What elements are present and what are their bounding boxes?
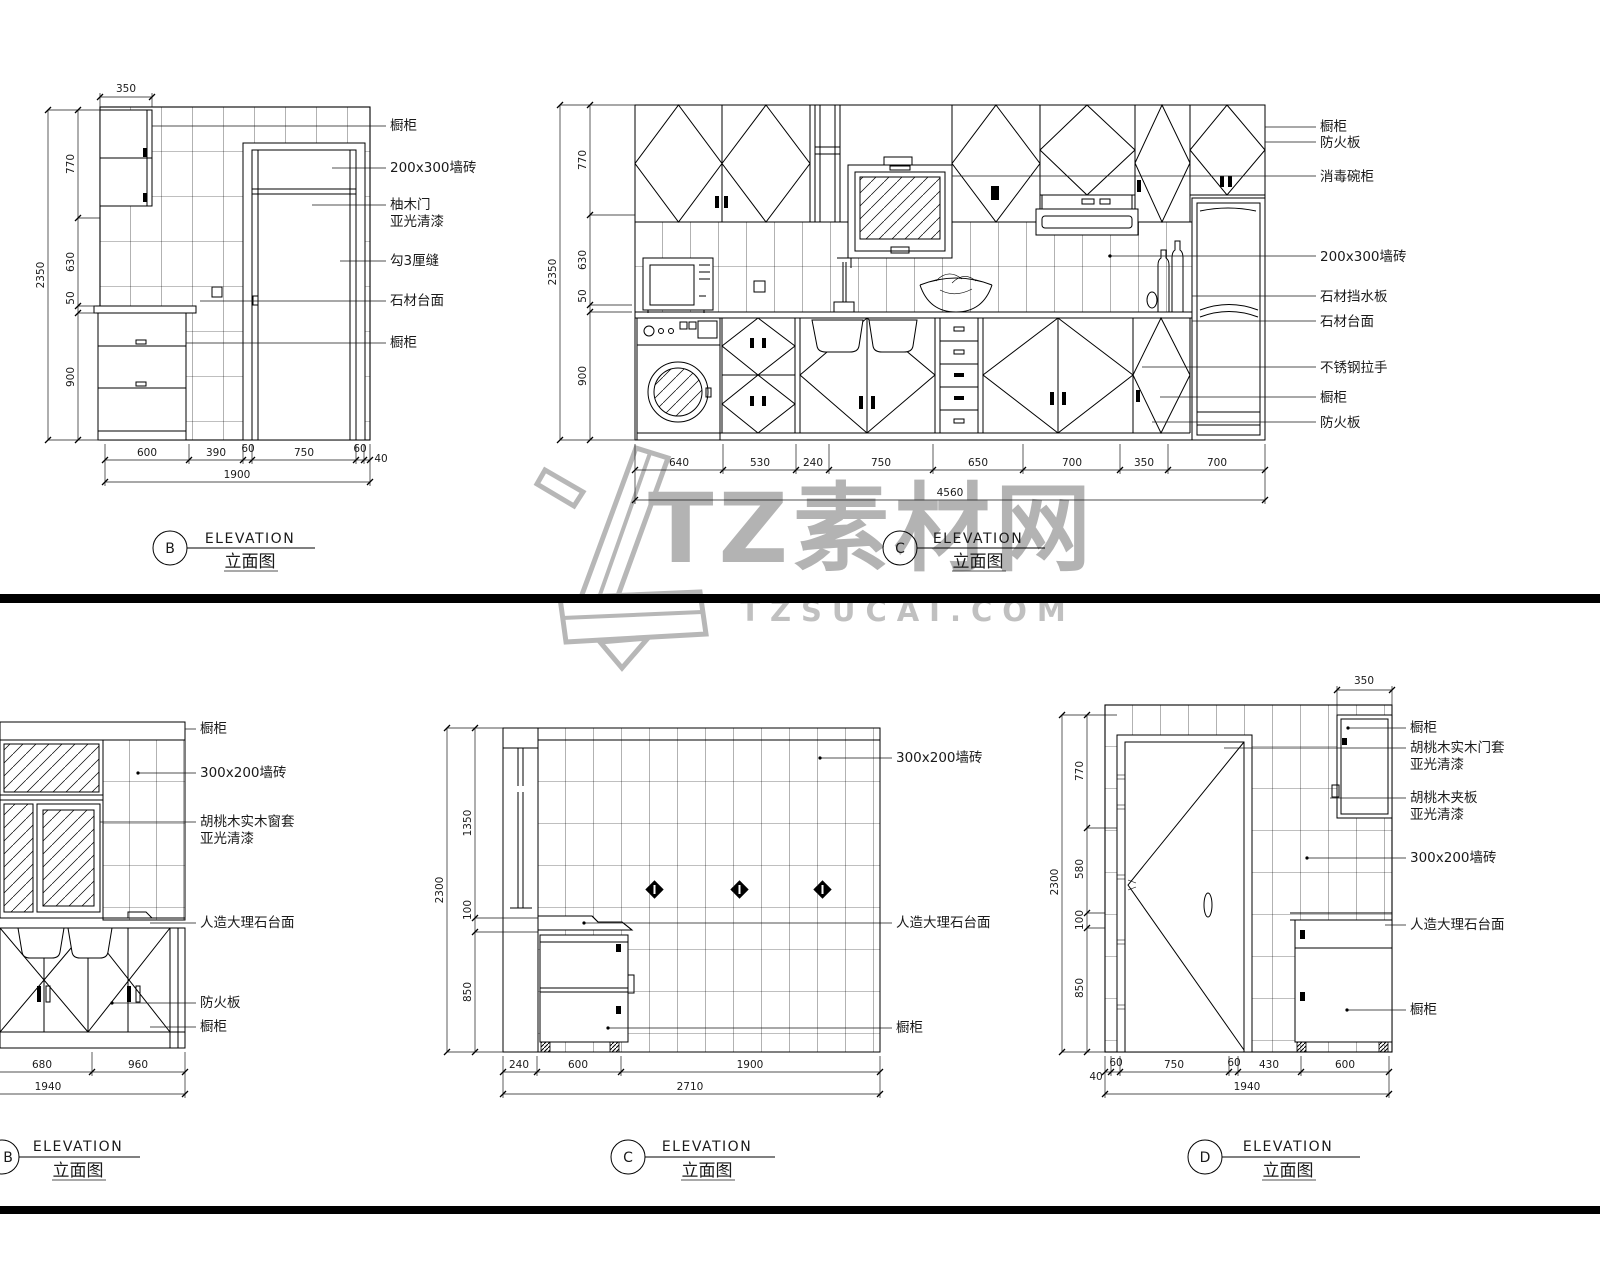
callout-label: 石材台面 xyxy=(1320,314,1374,330)
dim-label: 770 xyxy=(1074,761,1086,781)
callout-label: 石材台面 xyxy=(390,293,444,309)
title-zh: 立面图 xyxy=(225,552,276,572)
callout-label: 亚光清漆 xyxy=(390,214,444,230)
sink-bowl xyxy=(812,320,863,352)
base-cabinet xyxy=(94,306,196,440)
dim-label: 350 xyxy=(116,83,136,95)
callout-label: 人造大理石台面 xyxy=(896,915,991,931)
upper-cabinet-strip xyxy=(0,722,185,740)
wall-socket xyxy=(212,287,222,297)
dim-label: 600 xyxy=(137,447,157,459)
callout-label: 防火板 xyxy=(200,995,241,1011)
callout-label: 橱柜 xyxy=(1320,119,1347,135)
dim-label: 1900 xyxy=(737,1059,764,1071)
elevation-bottom-b: 680 960 1940 橱柜 300x200墙砖 胡桃木实木窗套 亚光清漆 人… xyxy=(0,721,295,1181)
dim-label: 60 xyxy=(1109,1057,1122,1069)
watermark: TZ素材网 TZSUCAI.COM xyxy=(537,448,1096,668)
callout-label: 橱柜 xyxy=(1320,390,1347,406)
callout-label: 橱柜 xyxy=(200,1019,227,1035)
title-zh: 立面图 xyxy=(953,552,1004,572)
drawing xyxy=(0,722,185,1048)
dim-label: 100 xyxy=(1074,910,1086,930)
dim-label: 900 xyxy=(65,367,77,387)
dim-label: 700 xyxy=(1207,457,1227,469)
dim-label: 2350 xyxy=(35,262,47,289)
cad-sheet: TZ素材网 TZSUCAI.COM xyxy=(0,0,1600,1280)
dim-label: 630 xyxy=(577,250,589,270)
dim-label: 850 xyxy=(1074,978,1086,998)
drawing xyxy=(503,728,880,1052)
callout-label: 300x200墙砖 xyxy=(200,765,287,781)
dim-label: 50 xyxy=(577,289,589,302)
callout-label: 亚光清漆 xyxy=(1410,807,1464,823)
callout-label: 橱柜 xyxy=(1410,1002,1437,1018)
title-block: B ELEVATION 立面图 xyxy=(0,1139,140,1181)
base-cabinets xyxy=(0,928,185,1048)
dim-label: 600 xyxy=(568,1059,588,1071)
dim-label: 240 xyxy=(803,457,823,469)
callout-label: 橱柜 xyxy=(896,1020,923,1036)
title-zh: 立面图 xyxy=(682,1161,733,1181)
dim-label: 60 xyxy=(353,443,366,455)
stone-countertop xyxy=(635,312,1192,318)
dim-label: 2300 xyxy=(1049,869,1061,896)
title-letter: C xyxy=(895,541,905,557)
dim-label: 600 xyxy=(1335,1059,1355,1071)
dim-label: 100 xyxy=(462,900,474,920)
dim-label: 1940 xyxy=(1234,1081,1261,1093)
wall-socket xyxy=(754,281,765,292)
divider-top xyxy=(0,594,1600,603)
sink-bowl xyxy=(18,928,64,958)
tiled-wall xyxy=(103,740,185,920)
callout-label: 胡桃木实木门套 xyxy=(1410,740,1505,756)
dim-label: 680 xyxy=(32,1059,52,1071)
callout-label: 防火板 xyxy=(1320,135,1361,151)
watermark-brand: TZ素材网 xyxy=(648,473,1096,585)
stone-countertop xyxy=(94,306,196,313)
dim-label: 700 xyxy=(1062,457,1082,469)
dim-label: 650 xyxy=(968,457,988,469)
cabinet-foot xyxy=(1379,1042,1388,1052)
dim-label: 60 xyxy=(1227,1057,1240,1069)
dim-label: 60 xyxy=(241,443,254,455)
callout-label: 勾3厘缝 xyxy=(390,253,439,269)
dim-label: 630 xyxy=(65,252,77,272)
title-letter: D xyxy=(1200,1150,1211,1166)
dim-label: 4560 xyxy=(937,487,964,499)
title-zh: 立面图 xyxy=(1263,1161,1314,1181)
title-block: B ELEVATION 立面图 xyxy=(153,531,315,572)
title-block: C ELEVATION 立面图 xyxy=(611,1139,775,1181)
drawer-stack xyxy=(940,318,978,433)
callout-label: 石材挡水板 xyxy=(1320,289,1388,305)
tall-cabinet-fridge xyxy=(1192,198,1265,440)
door xyxy=(1117,735,1252,1052)
elevation-bottom-c: 1350 100 850 2300 240 600 1900 2710 300x… xyxy=(434,725,991,1181)
dim-label: 430 xyxy=(1259,1059,1279,1071)
upper-cabinet xyxy=(1332,715,1392,818)
dim-label: 40 xyxy=(1089,1071,1102,1083)
callout-label: 防火板 xyxy=(1320,415,1361,431)
callout-label: 200x300墙砖 xyxy=(1320,249,1407,265)
title-block: D ELEVATION 立面图 xyxy=(1188,1139,1360,1181)
divider-bottom xyxy=(0,1206,1600,1214)
dim-label: 350 xyxy=(1134,457,1154,469)
title-en: ELEVATION xyxy=(33,1139,123,1155)
sterilizer-cabinet xyxy=(848,157,952,258)
dim-label: 50 xyxy=(65,291,77,304)
dim-label: 750 xyxy=(294,447,314,459)
sink-bowl xyxy=(68,928,112,958)
microwave xyxy=(643,258,713,313)
callout-label: 亚光清漆 xyxy=(1410,757,1464,773)
dim-label: 750 xyxy=(1164,1059,1184,1071)
callout-label: 橱柜 xyxy=(390,118,417,134)
cad-drawing-canvas: TZ素材网 TZSUCAI.COM xyxy=(0,0,1600,1280)
pilaster-column xyxy=(503,748,538,908)
dim-label: 960 xyxy=(128,1059,148,1071)
base-cabinet xyxy=(540,935,634,1052)
dim-label: 850 xyxy=(462,982,474,1002)
dim-label: 350 xyxy=(1354,675,1374,687)
title-en: ELEVATION xyxy=(1243,1139,1333,1155)
washing-machine xyxy=(637,318,720,440)
dim-label: 40 xyxy=(374,453,387,465)
title-letter: B xyxy=(3,1150,13,1166)
dim-label: 530 xyxy=(750,457,770,469)
dim-label: 2710 xyxy=(677,1081,704,1093)
dim-label: 750 xyxy=(871,457,891,469)
callout-label: 200x300墙砖 xyxy=(390,160,477,176)
base-cabinet xyxy=(1290,913,1392,1052)
callout-label: 橱柜 xyxy=(390,335,417,351)
dim-label: 1350 xyxy=(462,810,474,837)
callout-label: 人造大理石台面 xyxy=(1410,917,1505,933)
title-en: ELEVATION xyxy=(933,531,1023,547)
title-letter: C xyxy=(623,1150,633,1166)
elevation-top-b: 350 770 630 50 900 2350 600 390 60 750 6… xyxy=(35,83,477,572)
cabinet-foot xyxy=(541,1042,550,1052)
callout-label: 橱柜 xyxy=(200,721,227,737)
callout-label: 柚木门 xyxy=(390,197,431,213)
callout-label: 300x200墙砖 xyxy=(1410,850,1497,866)
dim-label: 770 xyxy=(65,154,77,174)
callout-label: 橱柜 xyxy=(1410,720,1437,736)
title-en: ELEVATION xyxy=(205,531,295,547)
callout-label: 300x200墙砖 xyxy=(896,750,983,766)
cabinet-foot xyxy=(1297,1042,1306,1052)
callout-label: 胡桃木夹板 xyxy=(1410,790,1478,806)
upper-cabinet xyxy=(100,110,152,206)
dim-label: 1900 xyxy=(224,469,251,481)
title-zh: 立面图 xyxy=(53,1161,104,1181)
dim-label: 580 xyxy=(1074,859,1086,879)
dim-label: 640 xyxy=(669,457,689,469)
callout-label: 消毒碗柜 xyxy=(1320,169,1374,185)
callout-label: 人造大理石台面 xyxy=(200,915,295,931)
dim-label: 900 xyxy=(577,366,589,386)
dim-label: 390 xyxy=(206,447,226,459)
dim-label: 1940 xyxy=(35,1081,62,1093)
dimensions: 680 960 1940 xyxy=(0,1052,188,1098)
window xyxy=(0,740,103,918)
teak-door xyxy=(243,143,365,440)
dim-label: 2300 xyxy=(434,877,446,904)
callout-label: 胡桃木实木窗套 xyxy=(200,813,295,830)
dim-label: 240 xyxy=(509,1059,529,1071)
title-en: ELEVATION xyxy=(662,1139,752,1155)
dim-label: 2350 xyxy=(547,259,559,286)
range-hood xyxy=(1036,195,1138,235)
sink-bowl xyxy=(869,320,917,352)
callout-label: 亚光清漆 xyxy=(200,831,254,847)
drawing xyxy=(1105,705,1392,1052)
drawing xyxy=(635,105,1265,440)
callout-label: 不锈钢拉手 xyxy=(1320,360,1388,376)
title-letter: B xyxy=(165,541,175,557)
elevation-bottom-d: 350 770 580 100 850 2300 40 60 750 60 43… xyxy=(1049,675,1505,1181)
drawing xyxy=(94,107,370,440)
dim-label: 770 xyxy=(577,150,589,170)
cabinet-foot xyxy=(610,1042,619,1052)
